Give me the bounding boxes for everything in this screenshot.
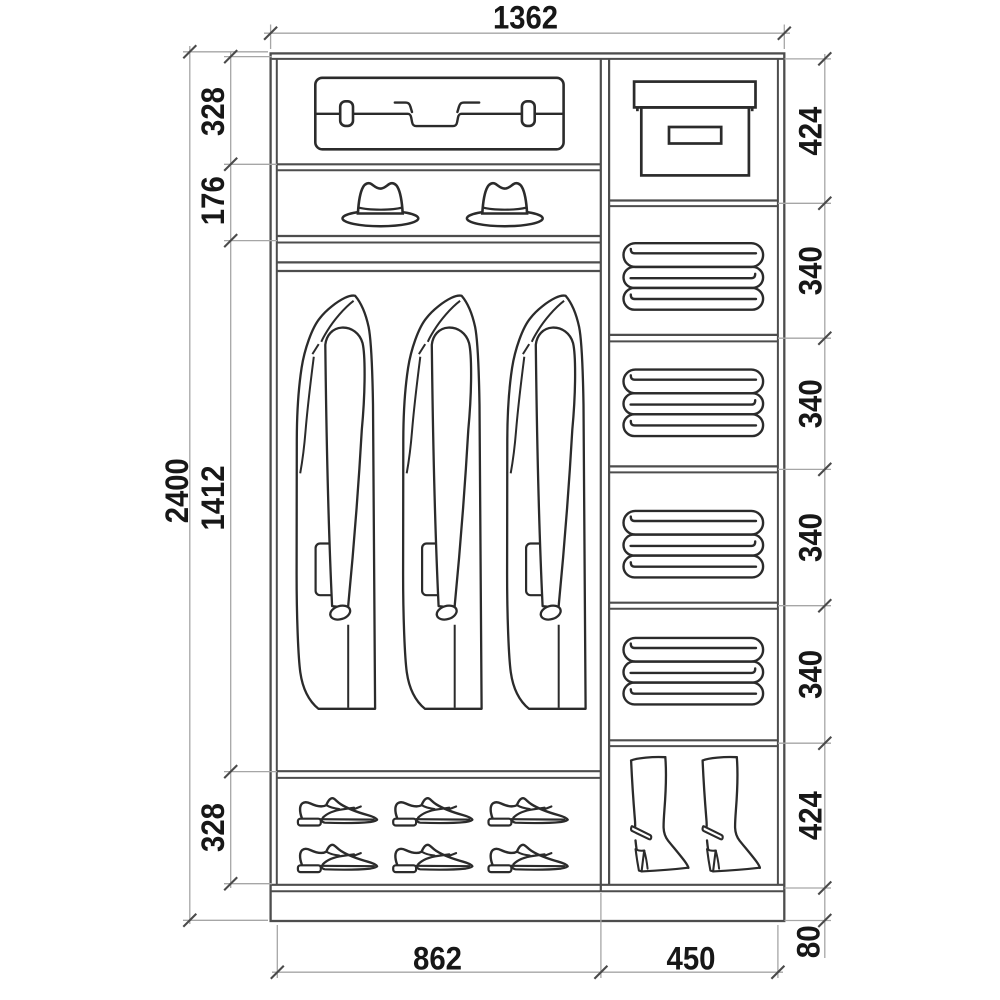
svg-text:450: 450 bbox=[667, 941, 716, 977]
svg-text:80: 80 bbox=[791, 925, 827, 958]
svg-text:328: 328 bbox=[195, 87, 231, 136]
svg-text:340: 340 bbox=[793, 650, 829, 699]
svg-text:176: 176 bbox=[195, 176, 231, 225]
svg-text:424: 424 bbox=[793, 791, 829, 840]
svg-text:1362: 1362 bbox=[493, 0, 558, 36]
svg-text:1412: 1412 bbox=[195, 466, 231, 531]
svg-text:2400: 2400 bbox=[159, 458, 195, 523]
svg-text:340: 340 bbox=[793, 379, 829, 428]
svg-text:862: 862 bbox=[413, 941, 462, 977]
svg-text:328: 328 bbox=[195, 803, 231, 852]
svg-text:340: 340 bbox=[793, 513, 829, 562]
svg-text:424: 424 bbox=[793, 107, 829, 156]
svg-text:340: 340 bbox=[793, 246, 829, 295]
